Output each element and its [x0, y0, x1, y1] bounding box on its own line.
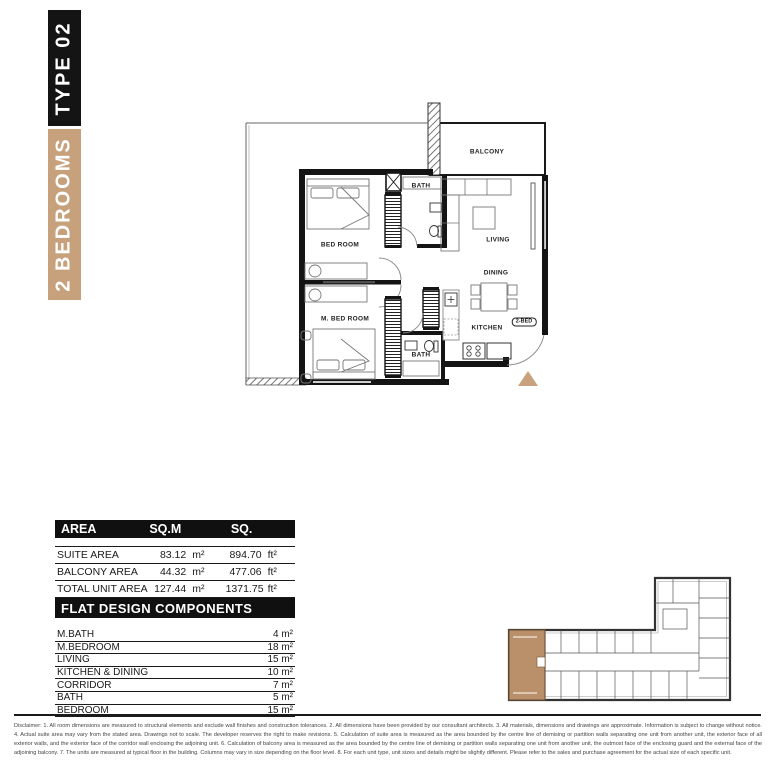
room-label-bath-top: BATH: [412, 183, 431, 190]
component-label: BATH: [57, 692, 83, 703]
sqm-unit: m²: [192, 566, 204, 578]
component-label: M.BEDROOM: [57, 642, 120, 653]
table-row: SUITE AREA 83.12m² 894.70ft²: [55, 546, 295, 563]
table-row: M.BATH4 m²: [55, 629, 295, 642]
components-table-title: FLAT DESIGN COMPONENTS: [55, 598, 295, 618]
component-value: 7 m²: [273, 680, 293, 691]
room-label-balcony: BALCONY: [470, 149, 504, 156]
row-label: BALCONY AREA: [55, 566, 148, 578]
sqft-unit: ft²: [268, 566, 277, 578]
type-banner: TYPE 02: [48, 10, 81, 126]
bedrooms-banner: 2 BEDROOMS: [48, 129, 81, 300]
entry-marker: [518, 371, 538, 386]
room-label-master-bedroom: M. BED ROOM: [321, 316, 369, 323]
component-value: 15 m²: [267, 654, 293, 665]
footer-divider: [14, 714, 761, 716]
room-label-living: LIVING: [486, 237, 509, 244]
disclaimer-text: Disclaimer: 1. All room dimensions are m…: [14, 722, 762, 758]
unit-tag: 2-BED: [512, 318, 537, 327]
table-row: M.BEDROOM18 m²: [55, 642, 295, 655]
row-label: SUITE AREA: [55, 549, 148, 561]
sqft-value: 894.70: [226, 549, 262, 561]
component-value: 5 m²: [273, 692, 293, 703]
component-label: CORRIDOR: [57, 680, 111, 691]
sqft-value: 477.06: [226, 566, 262, 578]
table-row: BATH5 m²: [55, 692, 295, 705]
row-label: TOTAL UNIT AREA: [55, 583, 148, 595]
room-label-bath-bottom: BATH: [412, 352, 431, 359]
components-table: FLAT DESIGN COMPONENTS M.BATH4 m² M.BEDR…: [55, 598, 295, 717]
component-label: KITCHEN & DINING: [57, 667, 148, 678]
area-header-col3: SQ.: [221, 522, 295, 536]
sqm-value: 83.12: [148, 549, 186, 561]
component-value: 4 m²: [273, 629, 293, 640]
table-row: BALCONY AREA 44.32m² 477.06ft²: [55, 563, 295, 580]
component-value: 10 m²: [267, 667, 293, 678]
room-label-bedroom: BED ROOM: [321, 242, 359, 249]
area-table-header: AREA SQ.M SQ.: [55, 520, 295, 538]
bedrooms-label: 2 BEDROOMS: [53, 137, 76, 291]
table-row: LIVING15 m²: [55, 654, 295, 667]
area-header-col2: SQ.M: [145, 522, 221, 536]
floor-plan-page: TYPE 02 2 BEDROOMS: [0, 0, 775, 770]
key-plan: [503, 573, 735, 705]
sqm-unit: m²: [192, 583, 204, 595]
floor-plan-drawing: [235, 95, 555, 395]
area-header-col1: AREA: [55, 522, 145, 536]
sqft-unit: ft²: [268, 549, 277, 561]
table-row: CORRIDOR7 m²: [55, 679, 295, 692]
sqm-value: 127.44: [148, 583, 186, 595]
sqm-unit: m²: [192, 549, 204, 561]
table-row: TOTAL UNIT AREA 127.44m² 1371.75ft²: [55, 580, 295, 598]
component-value: 18 m²: [267, 642, 293, 653]
sqm-value: 44.32: [148, 566, 186, 578]
sqft-unit: ft²: [268, 583, 277, 595]
room-label-kitchen: KITCHEN: [472, 325, 503, 332]
component-label: LIVING: [57, 654, 90, 665]
area-table: AREA SQ.M SQ. SUITE AREA 83.12m² 894.70f…: [55, 520, 295, 598]
sqft-value: 1371.75: [226, 583, 262, 595]
component-label: M.BATH: [57, 629, 94, 640]
type-label: TYPE 02: [53, 21, 76, 115]
table-row: KITCHEN & DINING10 m²: [55, 667, 295, 680]
key-plan-drawing: [503, 573, 735, 705]
room-label-dining: DINING: [484, 270, 509, 277]
floor-plan: BALCONY BED ROOM BATH LIVING DINING KITC…: [235, 95, 555, 395]
